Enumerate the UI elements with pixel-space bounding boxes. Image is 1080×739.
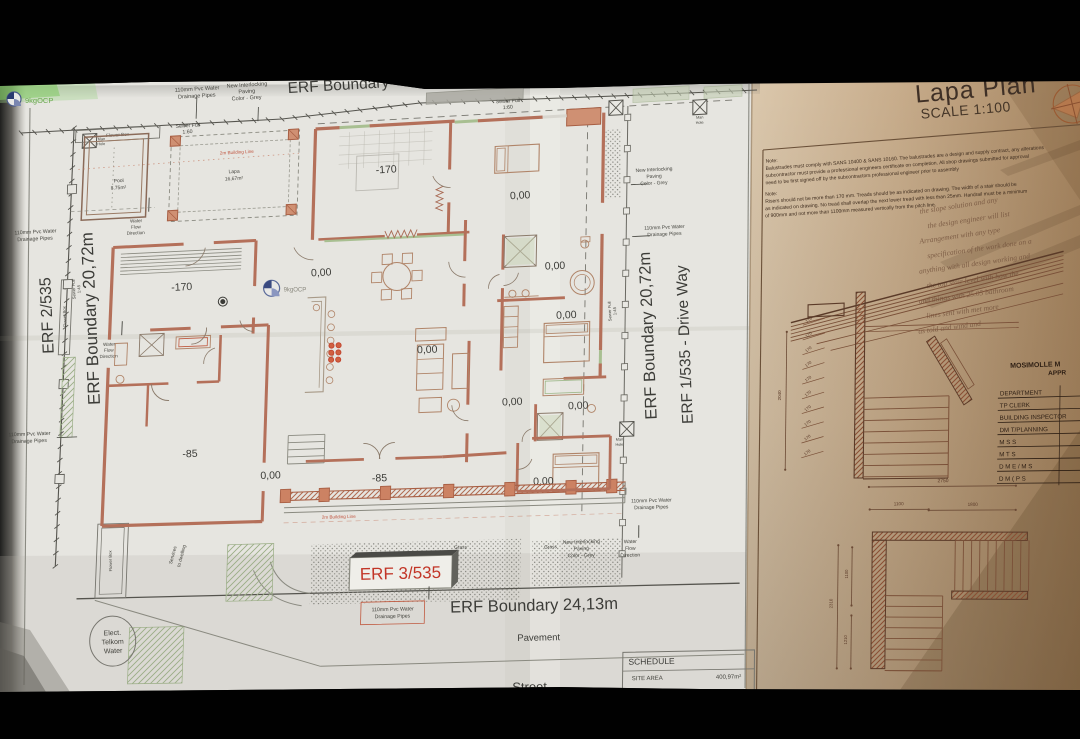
svg-text:1:45: 1:45 [612, 306, 617, 315]
svg-text:DEPARTMENT: DEPARTMENT [1000, 389, 1042, 397]
svg-text:Water: Water [104, 648, 123, 656]
svg-text:0,00: 0,00 [545, 260, 566, 273]
svg-text:Elect.: Elect. [103, 630, 121, 638]
svg-text:Man: Man [696, 115, 704, 119]
svg-text:8.75m²: 8.75m² [111, 185, 127, 192]
svg-text:Flower Box: Flower Box [107, 550, 113, 572]
svg-text:-170: -170 [375, 163, 397, 176]
svg-text:Drainage Pipes: Drainage Pipes [375, 613, 411, 620]
svg-text:M T S: M T S [999, 451, 1015, 458]
svg-text:SITE AREA: SITE AREA [632, 676, 663, 683]
svg-text:Man: Man [616, 437, 624, 441]
svg-text:APPR: APPR [1048, 370, 1067, 378]
svg-text:110mm Pvc Water: 110mm Pvc Water [372, 606, 414, 613]
svg-text:1:45: 1:45 [76, 284, 81, 293]
svg-text:Color - Grey: Color - Grey [567, 553, 595, 560]
svg-text:1100: 1100 [894, 501, 904, 506]
svg-text:1210: 1210 [843, 635, 848, 645]
svg-text:Direction: Direction [99, 353, 118, 359]
svg-text:DM T/PLANNING: DM T/PLANNING [1000, 426, 1049, 434]
svg-text:-170: -170 [171, 281, 193, 294]
svg-text:Paving: Paving [574, 546, 590, 552]
svg-text:Grass: Grass [544, 544, 558, 550]
svg-text:Flower Box: Flower Box [61, 305, 67, 327]
svg-text:Flow: Flow [131, 224, 142, 230]
svg-text:1100: 1100 [844, 569, 849, 579]
svg-text:Water: Water [103, 341, 116, 347]
svg-text:Water: Water [624, 539, 638, 545]
svg-text:Flow: Flow [104, 347, 115, 352]
svg-text:16,67m²: 16,67m² [225, 175, 244, 182]
svg-text:0,00: 0,00 [502, 396, 523, 409]
svg-text:0,00: 0,00 [568, 400, 589, 413]
svg-text:ERF 3/535: ERF 3/535 [360, 563, 442, 584]
svg-text:2m Building Line: 2m Building Line [322, 514, 357, 520]
svg-text:Telkom: Telkom [102, 639, 125, 647]
svg-text:-85: -85 [372, 472, 388, 484]
svg-text:ERF 2/535: ERF 2/535 [37, 277, 57, 354]
svg-text:Hole: Hole [97, 142, 105, 146]
svg-text:Paving: Paving [646, 173, 662, 180]
svg-text:TP CLERK: TP CLERK [1000, 402, 1031, 410]
svg-text:Pavement: Pavement [517, 632, 560, 644]
svg-text:1:60: 1:60 [503, 105, 514, 112]
svg-text:M S S: M S S [999, 439, 1016, 446]
svg-text:Note:: Note: [765, 158, 777, 165]
svg-text:SCHEDULE: SCHEDULE [628, 656, 675, 667]
svg-text:Hole: Hole [696, 121, 704, 125]
svg-text:0,00: 0,00 [260, 469, 281, 482]
svg-text:0,00: 0,00 [311, 266, 332, 279]
svg-text:0,00: 0,00 [556, 309, 577, 322]
svg-text:Pool: Pool [114, 178, 124, 185]
svg-text:Direction: Direction [620, 552, 640, 559]
svg-text:D M ( P S: D M ( P S [999, 476, 1026, 483]
svg-text:0,00: 0,00 [417, 343, 438, 356]
svg-text:D M E / M S: D M E / M S [999, 463, 1032, 470]
svg-text:Note:: Note: [765, 191, 777, 198]
svg-text:9kgOCP: 9kgOCP [284, 287, 307, 293]
svg-text:Drainage Pipes: Drainage Pipes [11, 438, 47, 445]
svg-text:2040: 2040 [777, 390, 782, 401]
svg-text:2750: 2750 [937, 478, 948, 484]
svg-text:0,00: 0,00 [510, 189, 531, 202]
svg-text:1:60: 1:60 [182, 129, 193, 136]
svg-text:New Interlocking: New Interlocking [563, 539, 600, 546]
svg-text:-85: -85 [182, 448, 198, 461]
svg-text:2310: 2310 [829, 598, 834, 608]
svg-text:Water: Water [130, 218, 143, 224]
svg-text:400,97m²: 400,97m² [716, 674, 741, 680]
svg-text:Direction: Direction [127, 230, 146, 236]
svg-text:9kgOCP: 9kgOCP [25, 96, 53, 105]
svg-text:1800: 1800 [968, 502, 979, 507]
svg-text:Hole: Hole [615, 443, 623, 447]
svg-text:BUILDING INSPECTOR: BUILDING INSPECTOR [1000, 413, 1068, 421]
svg-text:Lapa: Lapa [228, 169, 240, 176]
svg-text:Flow: Flow [625, 546, 636, 552]
svg-text:Drainage Pipes: Drainage Pipes [634, 504, 669, 511]
